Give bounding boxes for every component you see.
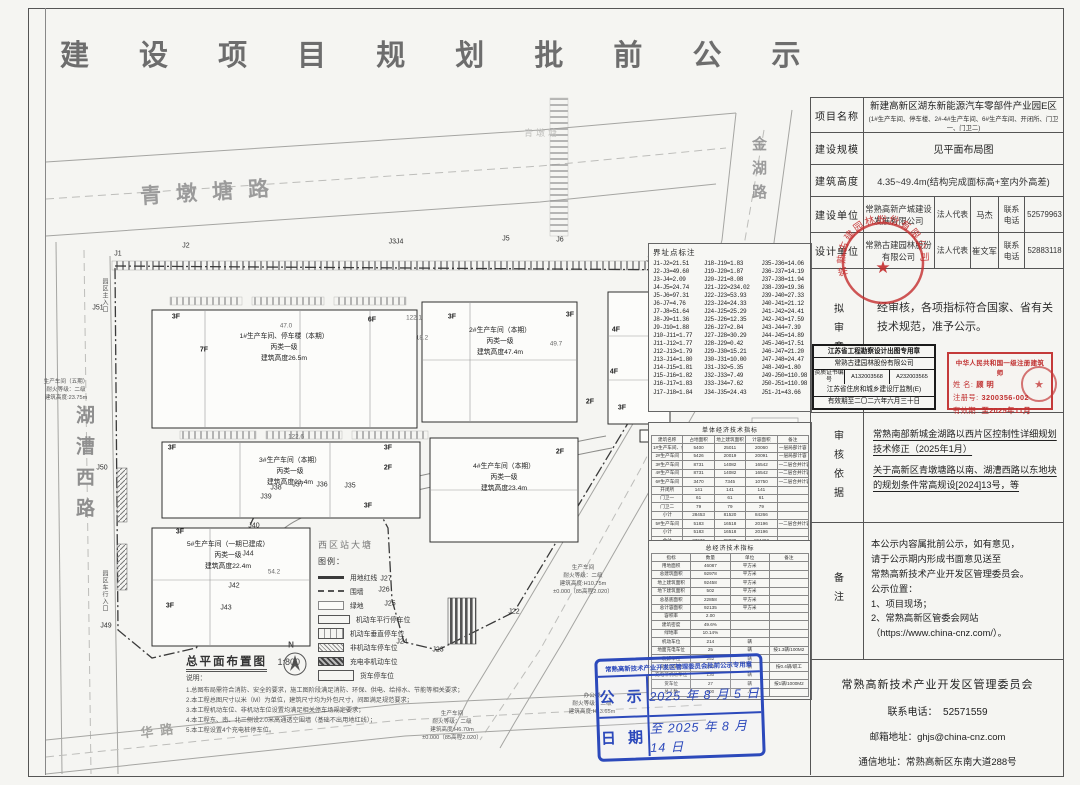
license-stamp-title: 江苏省工程勘察设计出图专用章 xyxy=(814,346,934,357)
footer-addr: 常熟高新区东南大道288号 xyxy=(906,757,1017,768)
page-title: 建 设 项 目 规 划 批 前 公 示 xyxy=(60,32,800,74)
floor-count-label: 3F xyxy=(364,503,372,510)
unit-indicator-table: 单体经济技术指标 建筑名称占地面积地上建筑面积计容面积备注1#生产车间、停车楼5… xyxy=(648,422,812,548)
table-cell: 平方米 xyxy=(730,596,769,604)
boundary-distance: J19-J20=1.87 xyxy=(704,268,750,276)
row-footer: 常熟高新技术产业开发区管理委员会 联系电话： 52571559 邮箱地址：ghj… xyxy=(811,660,1064,776)
truck-parking-icon xyxy=(318,670,354,681)
table-cell xyxy=(769,655,808,663)
floor-count-label: 6F xyxy=(368,317,376,324)
boundary-point-label: J39 xyxy=(260,494,271,501)
plan-scale: 1:800 xyxy=(277,657,300,667)
building-label-1: 1#生产车间、停车楼（本期）丙类一级建筑高度26.5m xyxy=(239,332,328,365)
boundary-distance: J49-J50=110.98 xyxy=(761,372,807,380)
boundary-distance: J17-J18=1.84 xyxy=(653,389,692,397)
context-line: 耐火等级：二级 xyxy=(553,572,613,580)
building-label-line: 丙类一级 xyxy=(239,343,328,354)
table-cell: 141 xyxy=(714,486,745,494)
parallel-parking-icon xyxy=(318,615,350,624)
table-cell: 214 xyxy=(691,638,730,646)
boundary-distance: J1-J2=21.51 xyxy=(653,260,692,268)
table-cell: 一二层合并计容 xyxy=(777,478,808,486)
boundary-distance: J4-J5=24.74 xyxy=(653,284,692,292)
builder-rep-label: 法人代表 xyxy=(935,197,971,232)
legend: 图例： 用地红线 围墙 绿地 机动车平行停车位 机动车垂直停车位 非机动车停车位… xyxy=(318,556,456,682)
building-label-line: 5#生产车间（一期已建成） xyxy=(187,540,269,551)
plan-title: 总平面布置图 xyxy=(186,656,267,672)
boundary-point-label: J40 xyxy=(248,523,259,530)
building-label-line: 建筑高度26.5m xyxy=(239,354,328,365)
table-cell: 计容面积 xyxy=(746,436,777,444)
notice-sheet: 建 设 项 目 规 划 批 前 公 示 青墩塘路 青墩塘 金湖路 湖漕西路 华路… xyxy=(0,0,1080,785)
architect-name-label: 姓 名: xyxy=(953,380,973,389)
note-line: （https://www.china-cnz.com/）。 xyxy=(871,626,1062,641)
project-name-label: 项目名称 xyxy=(811,98,864,132)
table-cell xyxy=(769,688,808,696)
legend-item-label: 货车停车位 xyxy=(360,670,394,680)
table-cell: 按0.4辆/职工 xyxy=(769,663,808,671)
basis-item: 常熟南部新城金湖路以西片区控制性详细规划技术修正（2025年1月） xyxy=(873,427,1060,456)
table-cell xyxy=(777,511,808,519)
table-cell: 门卫一 xyxy=(652,494,683,502)
building-label-line: 建筑高度23.4m xyxy=(259,478,321,489)
table-cell: 门卫二 xyxy=(652,503,683,511)
footer-addr-label: 通信地址： xyxy=(858,757,906,768)
table-cell: 平方米 xyxy=(730,562,769,570)
license-stamp-validity: 有效期至二〇二六年六月三十日 xyxy=(814,396,934,408)
table-cell: 绿地率 xyxy=(652,629,691,637)
boundary-distance: J21-J22=234.02 xyxy=(704,284,750,292)
boundary-distance: J25-J26=12.35 xyxy=(704,316,750,324)
table-cell: 10750 xyxy=(746,478,777,486)
table-cell: 20196 xyxy=(746,520,777,528)
table-cell: 占地面积 xyxy=(683,436,714,444)
note-line: 公示位置： xyxy=(871,582,1062,597)
table-cell: 地上建筑面积 xyxy=(652,579,691,587)
boundary-distance: J13-J14=1.80 xyxy=(653,356,692,364)
row-height: 建筑高度 4.35~49.4m(结构完成面标高+室内外高差) xyxy=(811,165,1064,197)
boundary-table-title: 界址点标注 xyxy=(653,247,807,258)
blue-stamp-date-start: 2025 年 8 月 5 日 xyxy=(648,672,761,717)
table-cell: 84266 xyxy=(746,511,777,519)
plan-title-block: 总平面布置图 1:800 xyxy=(186,652,300,670)
boundary-distance: J7-J8=51.64 xyxy=(653,308,692,316)
table-cell: 2#生产车间 xyxy=(652,452,683,460)
license-stamp-issuer: 江苏省住房和城乡建设厅监制(E) xyxy=(814,384,934,395)
boundary-distance: J22-J23=53.93 xyxy=(704,292,750,300)
legend-item-label: 机动车平行停车位 xyxy=(356,614,410,624)
floor-count-label: 3F xyxy=(618,405,626,412)
row-project-name: 项目名称 新建高新区湖东新能源汽车零部件产业园E区 (1#生产车间、停车楼、2#… xyxy=(811,98,1064,133)
boundary-point-label: J38 xyxy=(270,485,281,492)
table-cell: 141 xyxy=(746,486,777,494)
plan-note-line: 5.本工程设置4个充电桩停车位。 xyxy=(186,726,486,736)
boundary-distance: J45-J46=17.51 xyxy=(761,340,807,348)
greenland-icon xyxy=(318,601,344,610)
building-label-line: 2#生产车间（本期） xyxy=(469,326,531,337)
table-cell: 5426 xyxy=(683,452,714,460)
footer-contact: 常熟高新技术产业开发区管理委员会 联系电话： 52571559 邮箱地址：ghj… xyxy=(811,660,1064,768)
footer-org: 常熟高新技术产业开发区管理委员会 xyxy=(811,676,1064,692)
table-cell: 指标 xyxy=(652,554,691,562)
building-label-5: 5#生产车间（一期已建成）丙类一级建筑高度22.4m xyxy=(187,540,269,573)
boundary-col-1: J1-J2=21.51J2-J3=49.60J3-J4=2.09J4-J5=24… xyxy=(653,260,692,397)
plan-notes-list: 1.总图布局需符合消防、安全的要求，施工图阶段满足消防、环保、供电、给排水、节能… xyxy=(186,686,486,736)
unit-table-body: 建筑名称占地面积地上建筑面积计容面积备注1#生产车间、停车楼5400250112… xyxy=(652,436,809,545)
legend-item-label: 机动车垂直停车位 xyxy=(350,628,404,638)
boundary-distance: J46-J47=21.20 xyxy=(761,348,807,356)
legend-item-label: 非机动车停车位 xyxy=(350,642,398,652)
boundary-distance: J38-J39=19.36 xyxy=(761,284,807,292)
basis-label: 审核依据 xyxy=(830,430,845,506)
boundary-point-label: J49 xyxy=(100,623,111,630)
table-cell: 一层局部计容 xyxy=(777,444,808,452)
context-line: 生产车间（五期） xyxy=(44,378,89,386)
blue-stamp-date-end: 至 2025 年 8 月 14 日 xyxy=(649,713,762,756)
builder-tel-label: 联系电话 xyxy=(999,197,1025,232)
table-cell: 3470 xyxy=(683,478,714,486)
table-cell: 数量 xyxy=(691,554,730,562)
note-line: 2、常熟高新区管委会网站 xyxy=(871,611,1062,626)
building-label-line: 丙类一级 xyxy=(473,473,535,484)
boundary-distance: J11-J12=1.77 xyxy=(653,340,692,348)
blue-stamp-label-1: 公 示 xyxy=(598,676,647,719)
table-cell: 20091 xyxy=(746,452,777,460)
table-cell: 4#生产车间 xyxy=(652,469,683,477)
floor-count-label: 7F xyxy=(200,347,208,354)
designer-rep-label: 法人代表 xyxy=(935,233,971,268)
plan-note-line: 2.本工程总图尺寸以米（M）为单位，建筑尺寸均为外包尺寸，间距满足规范要求； xyxy=(186,696,486,706)
note-line: 常熟高新技术产业开发区管理委员会。 xyxy=(871,567,1062,582)
boundary-distance: J44-J45=14.89 xyxy=(761,332,807,340)
note-line: 本公示内容属批前公示，如有意见， xyxy=(871,537,1062,552)
designer-rep: 崔文军 xyxy=(971,233,999,268)
table-cell xyxy=(777,528,808,536)
table-cell xyxy=(769,570,808,578)
boundary-distance: J18-J19=1.83 xyxy=(704,260,750,268)
context-line: ±0.000（85高程2.020） xyxy=(553,588,613,596)
boundary-point-table: 界址点标注 J1-J2=21.51J2-J3=49.60J3-J4=2.09J4… xyxy=(648,243,812,412)
floor-count-label: 3F xyxy=(168,445,176,452)
table-cell xyxy=(769,612,808,620)
table-cell: 建筑名称 xyxy=(652,436,683,444)
context-line: 生产车间 xyxy=(553,564,613,572)
scale-value: 见平面布局图 xyxy=(863,133,1064,164)
boundary-point-label: J2 xyxy=(182,243,189,250)
boundary-distance: J6-J7=4.76 xyxy=(653,300,692,308)
building-label-line: 丙类一级 xyxy=(187,551,269,562)
boundary-distance: J35-J36=14.06 xyxy=(761,260,807,268)
table-cell: 141 xyxy=(683,486,714,494)
info-table: 项目名称 新建高新区湖东新能源汽车零部件产业园E区 (1#生产车间、停车楼、2#… xyxy=(810,97,1063,775)
table-cell: 46087 xyxy=(691,562,730,570)
row-basis: 审核依据 常熟南部新城金湖路以西片区控制性详细规划技术修正（2025年1月）关于… xyxy=(811,413,1064,523)
table-cell: 502 xyxy=(691,587,730,595)
boundary-point-label: J35 xyxy=(344,483,355,490)
boundary-distance: J14-J15=1.81 xyxy=(653,364,692,372)
table-cell xyxy=(769,587,808,595)
cert-number-1: A132003568 xyxy=(845,370,890,384)
floor-count-label: 2F xyxy=(586,399,594,406)
boundary-distance: J3-J4=2.09 xyxy=(653,276,692,284)
table-cell: 平方米 xyxy=(730,579,769,587)
boundary-point-label: J43 xyxy=(220,605,231,612)
entrance-label-vehicle: 园区车行入口 xyxy=(100,570,109,612)
table-cell: 8731 xyxy=(683,461,714,469)
table-cell: 地上建筑面积 xyxy=(714,436,745,444)
boundary-distance: J2-J3=49.60 xyxy=(653,268,692,276)
legend-title: 图例： xyxy=(318,556,456,567)
boundary-distance: J31-J32=5.35 xyxy=(704,364,750,372)
note-line: 1、项目现场； xyxy=(871,597,1062,612)
boundary-distance: J39-J40=27.33 xyxy=(761,292,807,300)
table-cell: 总计容面积 xyxy=(652,604,691,612)
project-name-value: 新建高新区湖东新能源汽车零部件产业园E区 (1#生产车间、停车楼、2#-4#生产… xyxy=(863,98,1064,132)
floor-count-label: 2F xyxy=(556,449,564,456)
table-cell: 16518 xyxy=(714,520,745,528)
license-stamp-company: 常熟古建园林股份有限公司 xyxy=(814,357,934,369)
boundary-distance: J41-J42=24.41 xyxy=(761,308,807,316)
table-cell xyxy=(777,486,808,494)
table-cell: 25 xyxy=(691,646,730,654)
dimension-label: 54.2 xyxy=(268,569,280,576)
table-cell: 20060 xyxy=(746,444,777,452)
table-cell: 机动车位 xyxy=(652,638,691,646)
building-label-line: 丙类一级 xyxy=(259,467,321,478)
boundary-distance: J9-J10=1.88 xyxy=(653,324,692,332)
seal-star-icon: ★ xyxy=(875,258,890,277)
boundary-distance: J28-J29=0.42 xyxy=(704,340,750,348)
table-cell: 一二层合并计容 xyxy=(777,461,808,469)
context-line: ±0.000（85高程2.020） xyxy=(422,734,482,742)
table-cell xyxy=(769,671,808,679)
dimension-label: 122.6 xyxy=(288,434,304,441)
table-cell: 81520 xyxy=(714,511,745,519)
row-note: 备注 本公示内容属批前公示，如有意见，请于公示期内形成书面意见送至常熟高新技术产… xyxy=(811,523,1064,660)
architect-reg: 3200356-002 xyxy=(982,393,1029,402)
scale-label: 建设规模 xyxy=(811,133,864,164)
building-label-line: 建筑高度22.4m xyxy=(187,562,269,573)
boundary-distance: J33-J34=7.62 xyxy=(704,380,750,388)
legend-item-label: 用地红线 xyxy=(350,572,377,582)
table-cell: 61 xyxy=(746,494,777,502)
boundary-distance: J15-J16=1.82 xyxy=(653,372,692,380)
license-cert-row: 资质证书编号 A132003568 A232003565 xyxy=(814,369,934,384)
plan-note-line: 4.本工程东、南、北三侧设2.0米高通透空围墙（基础不出用地红线）； xyxy=(186,716,486,726)
table-cell: 16542 xyxy=(746,469,777,477)
table-cell: 5183 xyxy=(683,520,714,528)
table-cell: 79 xyxy=(714,503,745,511)
boundary-distance: J47-J48=24.47 xyxy=(761,356,807,364)
boundary-distance: J50-J51=110.98 xyxy=(761,380,807,388)
floor-count-label: 4F xyxy=(610,369,618,376)
floor-count-label: 4F xyxy=(612,327,620,334)
redline-icon xyxy=(318,576,344,579)
table-cell: 6#生产车间 xyxy=(652,478,683,486)
boundary-distance: J42-J43=17.59 xyxy=(761,316,807,324)
building-label-line: 建筑高度47.4m xyxy=(469,348,531,359)
building-label-line: 建筑高度23.4m xyxy=(473,484,535,495)
footer-tel: 52571559 xyxy=(943,707,988,718)
floor-count-label: 3F xyxy=(384,445,392,452)
basis-list: 常熟南部新城金湖路以西片区控制性详细规划技术修正（2025年1月）关于高新区青墩… xyxy=(873,427,1060,500)
context-label-1: 生产车间（五期）耐火等级：二级建筑高度:23.75m xyxy=(44,378,89,402)
table-cell: 61 xyxy=(714,494,745,502)
footer-email: ghjs@china-cnz.com xyxy=(917,732,1005,743)
boundary-distance: J29-J30=15.21 xyxy=(704,348,750,356)
road-label-jinhu: 金湖路 xyxy=(748,136,769,208)
table-cell: 按1辆/1000M2 xyxy=(769,680,808,688)
basis-item: 关于高新区青墩塘路以南、湖漕西路以东地块的规划条件常高规设[2024]13号，等 xyxy=(873,463,1060,492)
table-cell: 开闭所 xyxy=(652,486,683,494)
table-cell: 20196 xyxy=(746,528,777,536)
plan-note-line: 1.总图布局需符合消防、安全的要求，施工图阶段满足消防、环保、供电、给排水、节能… xyxy=(186,686,486,696)
table-cell xyxy=(769,562,808,570)
boundary-point-label: J5 xyxy=(502,236,509,243)
boundary-distance: J10-J11=1.77 xyxy=(653,332,692,340)
floor-count-label: 2F xyxy=(384,465,392,472)
design-license-stamp: 江苏省工程勘察设计出图专用章 常熟古建园林股份有限公司 资质证书编号 A1320… xyxy=(812,344,936,410)
table-cell: 一层局部计容 xyxy=(777,452,808,460)
plan-notes: 说明： 1.总图布局需符合消防、安全的要求，施工图阶段满足消防、环保、供电、给排… xyxy=(186,674,486,735)
boundary-distance: J16-J17=1.83 xyxy=(653,380,692,388)
boundary-point-label: J37 xyxy=(292,482,303,489)
charging-nonmotor-icon xyxy=(318,657,344,666)
boundary-distance: J43-J44=7.39 xyxy=(761,324,807,332)
table-cell: 平方米 xyxy=(730,570,769,578)
boundary-distance: J37-J38=11.94 xyxy=(761,276,807,284)
table-cell xyxy=(730,612,769,620)
unit-table-title: 单体经济技术指标 xyxy=(651,424,809,435)
boundary-point-label: J50 xyxy=(96,465,107,472)
table-cell: 平方米 xyxy=(730,604,769,612)
table-cell: 7345 xyxy=(714,478,745,486)
table-cell: 5183 xyxy=(683,528,714,536)
blue-stamp-label-2: 日 期 xyxy=(599,717,648,758)
builder-tel: 52579963 xyxy=(1025,197,1064,232)
table-cell: 建筑密度 xyxy=(652,621,691,629)
vertical-parking-icon xyxy=(318,628,344,639)
table-cell xyxy=(769,638,808,646)
boundary-distance: J26-J27=2.84 xyxy=(704,324,750,332)
building-label-line: 3#生产车间（本期） xyxy=(259,456,321,467)
boundary-distance: J23-J24=24.33 xyxy=(704,300,750,308)
table-cell: 1#生产车间、停车楼 xyxy=(652,444,683,452)
boundary-distance: J20-J21=8.08 xyxy=(704,276,750,284)
boundary-distance: J27-J28=30.29 xyxy=(704,332,750,340)
boundary-point-label: J44 xyxy=(242,551,253,558)
cert-number-2: A232003565 xyxy=(890,370,934,384)
table-cell: 容积率 xyxy=(652,612,691,620)
designer-tel-label: 联系电话 xyxy=(999,233,1025,268)
table-cell xyxy=(777,494,808,502)
table-cell: 79 xyxy=(746,503,777,511)
table-cell: 61 xyxy=(683,494,714,502)
building-label-line: 4#生产车间（本期） xyxy=(473,462,535,473)
boundary-distance: J12-J13=1.79 xyxy=(653,348,692,356)
floor-count-label: 3F xyxy=(172,314,180,321)
table-cell: 10.14% xyxy=(691,629,730,637)
row-scale: 建设规模 见平面布局图 xyxy=(811,133,1064,165)
context-line: 建筑高度:23.75m xyxy=(44,394,89,402)
boundary-point-label: J1 xyxy=(114,251,121,258)
boundary-distance: J36-J37=14.19 xyxy=(761,268,807,276)
table-cell: 28453 xyxy=(683,511,714,519)
nonmotor-parking-icon xyxy=(318,643,344,652)
table-cell xyxy=(777,503,808,511)
table-cell xyxy=(769,604,808,612)
table-cell: 按1.3辆/100M2 xyxy=(769,646,808,654)
note-label: 备注 xyxy=(830,572,845,610)
north-arrow-label: N xyxy=(288,641,294,650)
table-cell: 小计 xyxy=(652,528,683,536)
table-cell: 20019 xyxy=(714,452,745,460)
legend-item-label: 充电非机动车位 xyxy=(350,656,398,666)
river-label: 青墩塘 xyxy=(524,126,560,139)
boundary-distance: J8-J9=11.36 xyxy=(653,316,692,324)
table-cell: 总基底面积 xyxy=(652,596,691,604)
building-label-3: 3#生产车间（本期）丙类一级建筑高度23.4m xyxy=(259,456,321,489)
table-cell: 2.00 xyxy=(691,612,730,620)
context-label-2: 生产车间耐火等级：二级建筑高度:H10.75m±0.000（85高程2.020） xyxy=(553,564,613,596)
boundary-col-3: J35-J36=14.06J36-J37=14.19J37-J38=11.94J… xyxy=(761,260,807,397)
design-company-seal: 常熟古建园林股份有限公司 ★ xyxy=(835,215,931,311)
boundary-distance: J48-J49=1.80 xyxy=(761,364,807,372)
table-cell: 地面充电车位 xyxy=(652,646,691,654)
table-cell: 16542 xyxy=(746,461,777,469)
floor-count-label: 3F xyxy=(566,312,574,319)
table-cell: 25011 xyxy=(714,444,745,452)
height-label: 建筑高度 xyxy=(811,165,864,196)
boundary-distance: J24-J25=25.29 xyxy=(704,308,750,316)
project-name: 新建高新区湖东新能源汽车零部件产业园E区 xyxy=(870,98,1057,112)
table-cell xyxy=(730,621,769,629)
road-label-hucaoxi: 湖漕西路 xyxy=(70,405,97,529)
boundary-distance: J30-J31=10.00 xyxy=(704,356,750,364)
table-cell: 小计 xyxy=(652,511,683,519)
legend-item-label: 围墙 xyxy=(350,586,364,596)
floor-count-label: 3F xyxy=(448,314,456,321)
cert-label: 资质证书编号 xyxy=(814,370,845,384)
table-cell: 16518 xyxy=(714,528,745,536)
floor-count-label: 3F xyxy=(176,529,184,536)
note-lines: 本公示内容属批前公示，如有意见，请于公示期内形成书面意见送至常熟高新技术产业开发… xyxy=(871,537,1062,641)
table-cell: 5400 xyxy=(683,444,714,452)
footer-email-label: 邮箱地址： xyxy=(870,732,918,743)
building-label-2: 2#生产车间（本期）丙类一级建筑高度47.4m xyxy=(469,326,531,359)
context-line: 耐火等级：二级 xyxy=(44,386,89,394)
designer-tel: 52883118 xyxy=(1025,233,1064,268)
architect-reg-label: 注册号: xyxy=(953,393,979,402)
dimension-label: 49.7 xyxy=(550,341,562,348)
pond-label: 西区站大塘 xyxy=(318,538,373,551)
boundary-point-label: J42 xyxy=(228,583,239,590)
architect-valid: 至2025年11月 xyxy=(982,406,1031,415)
boundary-point-label: J22 xyxy=(508,609,519,616)
boundary-point-label: J36 xyxy=(316,482,327,489)
table-cell xyxy=(769,621,808,629)
publicity-date-stamp: 常熟高新技术产业开发区管理委员会批前公示专用章 公 示 日 期 2025 年 8… xyxy=(594,653,765,762)
boundary-distance: J51-J1=43.66 xyxy=(761,389,807,397)
table-cell: 辆 xyxy=(730,638,769,646)
architect-seal-icon: ★ xyxy=(1021,366,1057,402)
boundary-point-label: J3J4 xyxy=(389,239,404,246)
table-cell xyxy=(769,629,808,637)
table-cell: 备注 xyxy=(777,436,808,444)
boundary-distance: J40-J41=21.12 xyxy=(761,300,807,308)
total-table-title: 总经济技术指标 xyxy=(651,542,809,553)
table-cell: 79 xyxy=(683,503,714,511)
